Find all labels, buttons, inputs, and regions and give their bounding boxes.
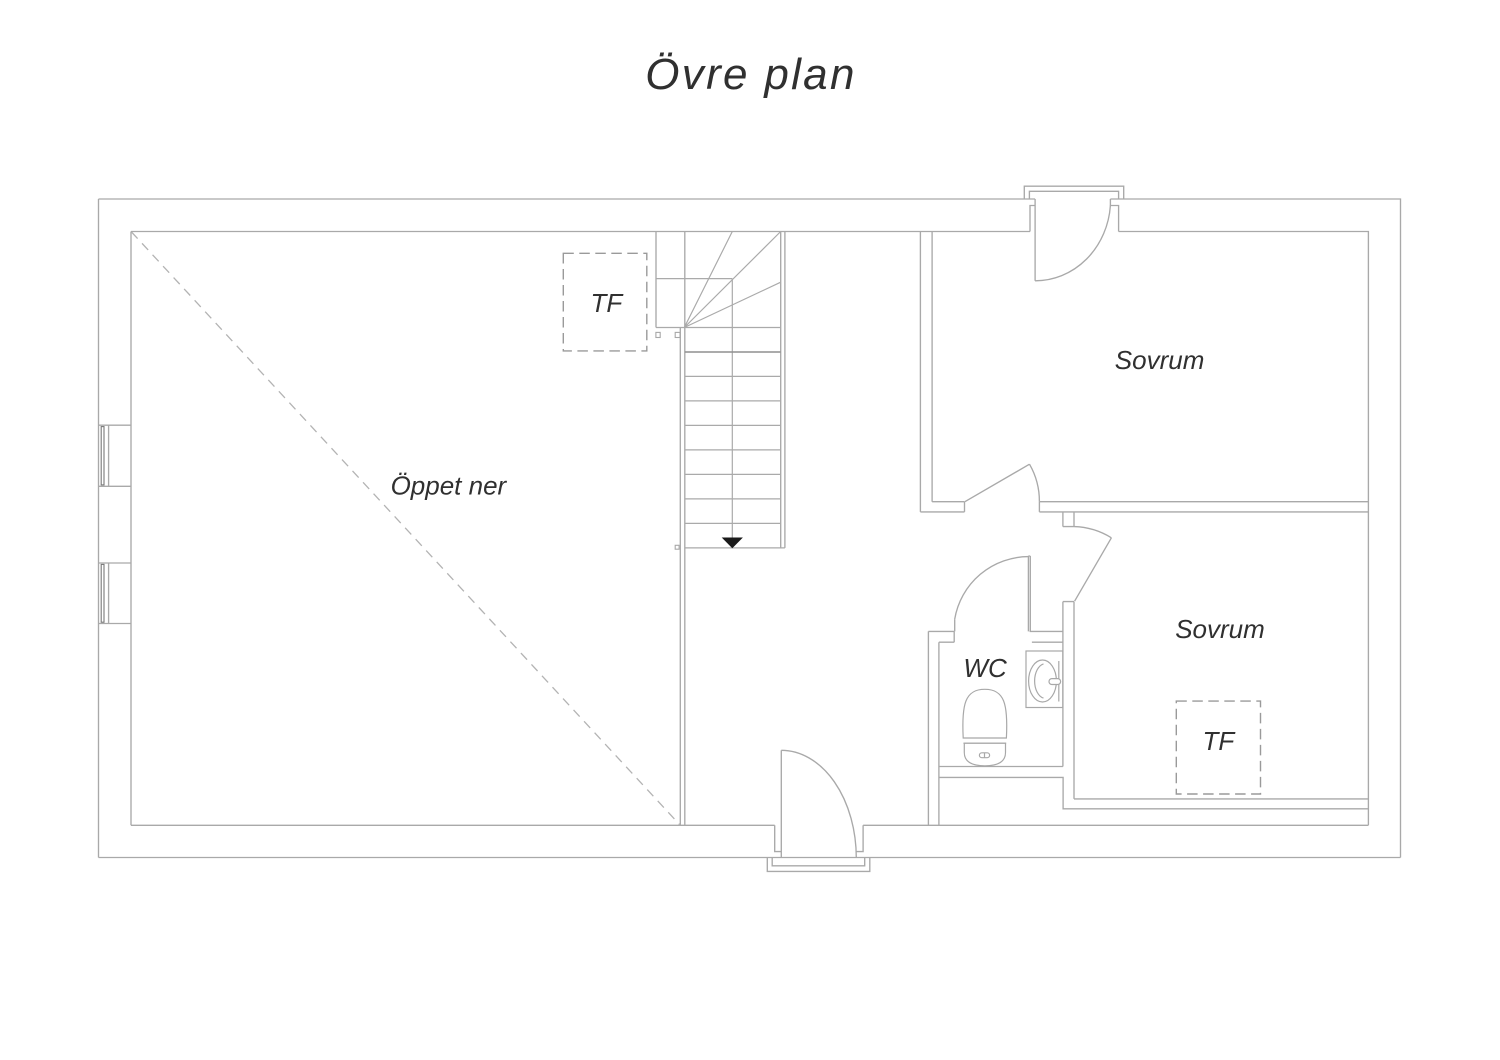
svg-text:Öppet ner: Öppet ner xyxy=(391,471,508,501)
svg-text:Sovrum: Sovrum xyxy=(1115,345,1205,375)
svg-text:WC: WC xyxy=(963,653,1007,683)
svg-text:TF: TF xyxy=(591,288,625,318)
svg-text:TF: TF xyxy=(1203,726,1237,756)
svg-text:Övre plan: Övre plan xyxy=(645,50,856,99)
svg-text:Sovrum: Sovrum xyxy=(1175,614,1265,644)
